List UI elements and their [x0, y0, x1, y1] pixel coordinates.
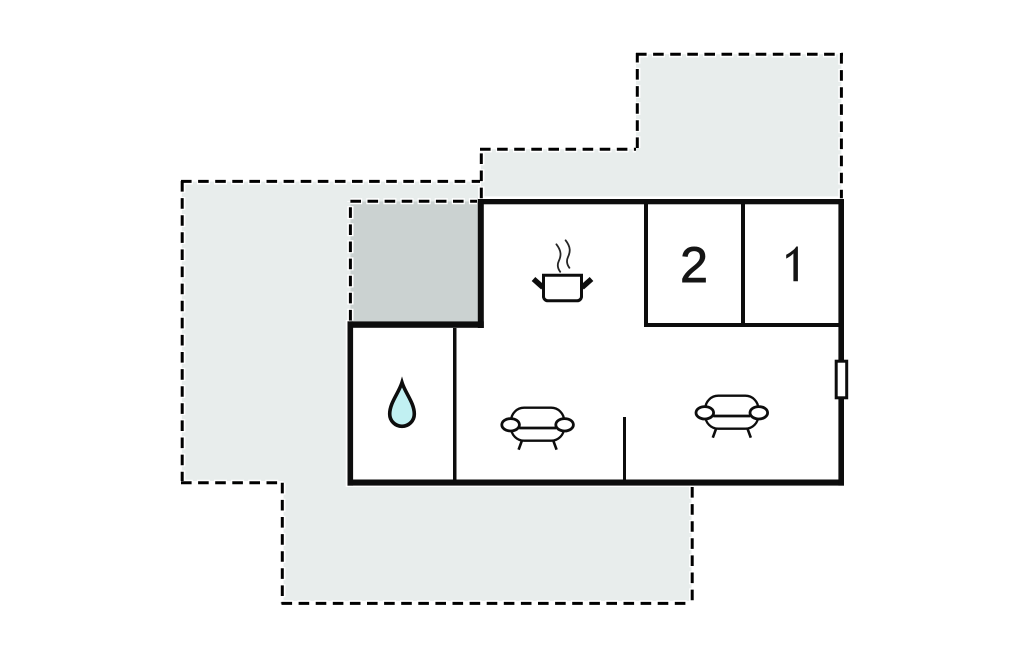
svg-text:2: 2: [680, 237, 708, 293]
